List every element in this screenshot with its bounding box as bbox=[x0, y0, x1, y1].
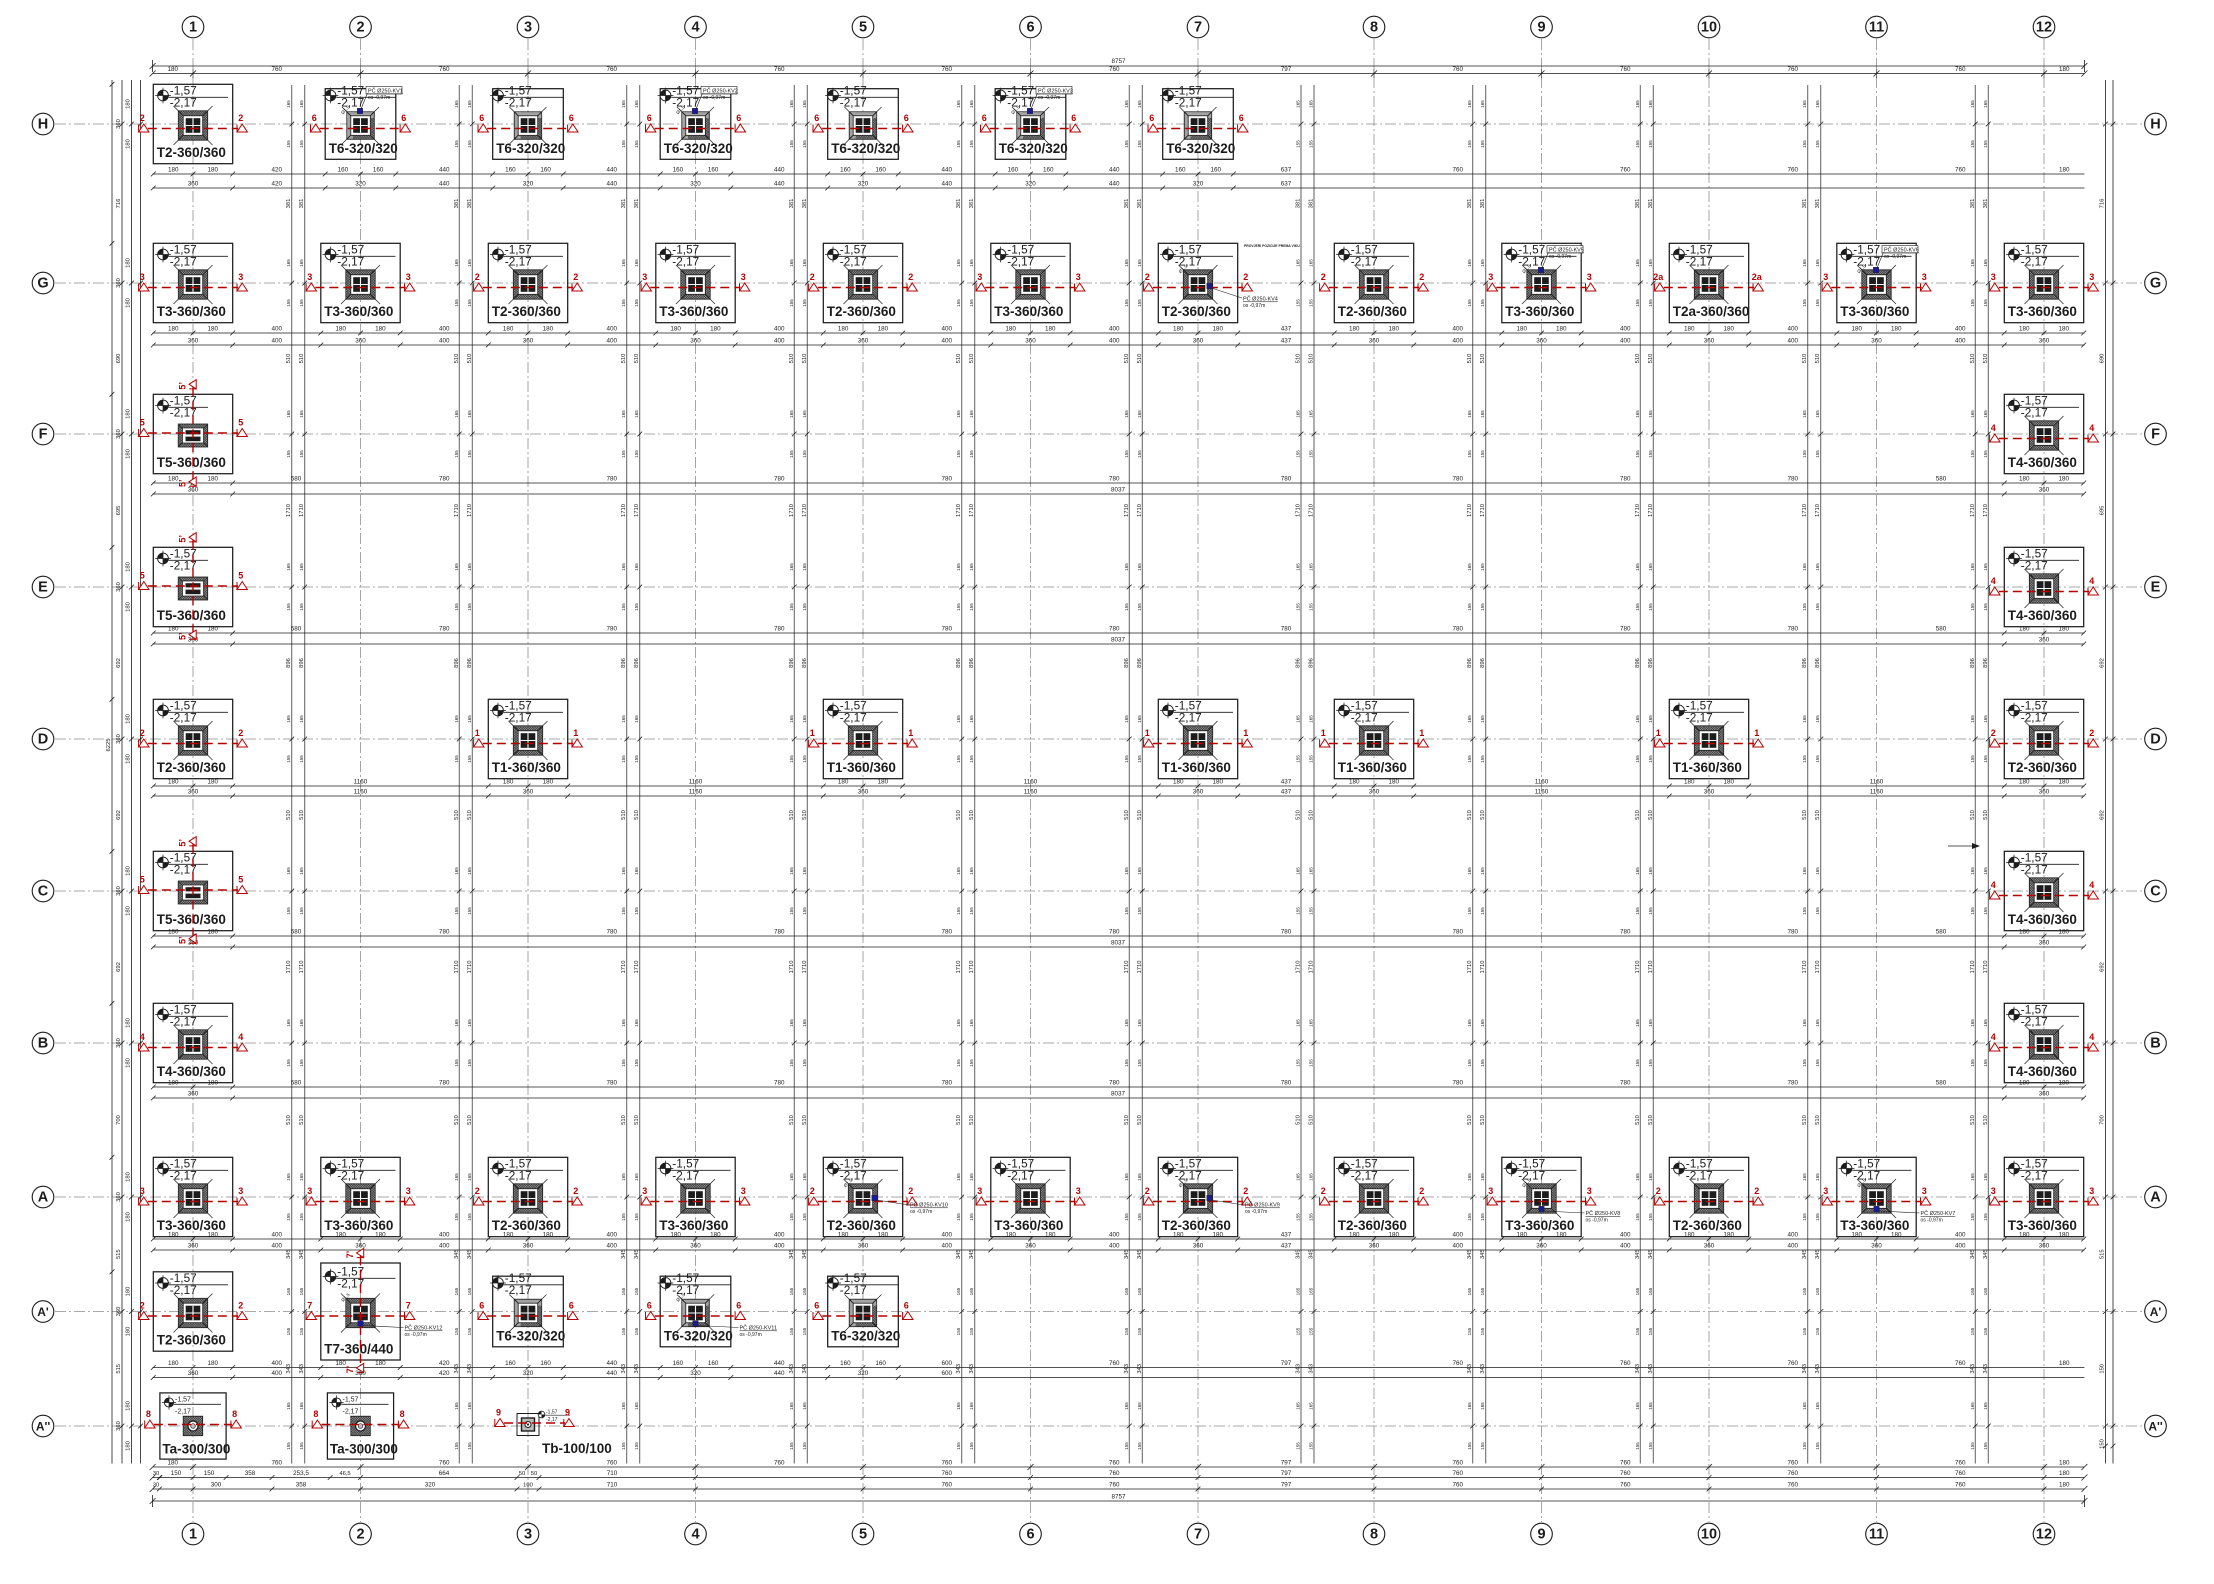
svg-text:165: 165 bbox=[1467, 259, 1472, 267]
svg-text:1160: 1160 bbox=[1870, 779, 1884, 786]
svg-text:180: 180 bbox=[168, 929, 179, 936]
svg-text:155: 155 bbox=[1137, 140, 1142, 148]
svg-text:760: 760 bbox=[1109, 1470, 1120, 1477]
svg-text:155: 155 bbox=[1296, 450, 1301, 458]
svg-text:165: 165 bbox=[1137, 715, 1142, 723]
svg-text:510: 510 bbox=[1124, 354, 1130, 364]
svg-text:343: 343 bbox=[789, 1364, 795, 1374]
svg-text:180: 180 bbox=[126, 139, 132, 149]
svg-text:155: 155 bbox=[1970, 603, 1975, 611]
svg-text:343: 343 bbox=[956, 1364, 962, 1374]
svg-text:797: 797 bbox=[1281, 66, 1292, 73]
svg-text:400: 400 bbox=[774, 338, 785, 345]
svg-text:400: 400 bbox=[774, 1243, 785, 1250]
svg-text:320: 320 bbox=[1025, 181, 1036, 188]
svg-text:437: 437 bbox=[1281, 338, 1292, 345]
svg-text:165: 165 bbox=[1309, 100, 1314, 108]
svg-text:os -0,97m: os -0,97m bbox=[405, 1332, 427, 1338]
svg-text:155: 155 bbox=[621, 907, 626, 915]
svg-text:510: 510 bbox=[1648, 354, 1654, 364]
svg-text:780: 780 bbox=[1788, 476, 1799, 483]
svg-text:2: 2 bbox=[573, 272, 578, 282]
svg-text:510: 510 bbox=[1802, 810, 1808, 820]
svg-text:320: 320 bbox=[1193, 181, 1204, 188]
svg-text:155: 155 bbox=[1309, 450, 1314, 458]
svg-text:510: 510 bbox=[1124, 1115, 1130, 1125]
svg-text:400: 400 bbox=[1109, 338, 1120, 345]
svg-text:1710: 1710 bbox=[286, 504, 292, 517]
svg-text:180: 180 bbox=[2059, 1360, 2070, 1367]
svg-text:180: 180 bbox=[375, 1360, 386, 1367]
svg-text:165: 165 bbox=[1635, 410, 1640, 418]
svg-text:165: 165 bbox=[1137, 867, 1142, 875]
svg-text:30: 30 bbox=[153, 1483, 159, 1489]
svg-text:1: 1 bbox=[189, 19, 197, 35]
svg-text:360: 360 bbox=[188, 1091, 199, 1098]
svg-text:155: 155 bbox=[454, 1442, 459, 1450]
svg-text:1160: 1160 bbox=[1024, 789, 1038, 796]
svg-text:381: 381 bbox=[1137, 199, 1143, 209]
svg-text:5: 5 bbox=[140, 875, 145, 885]
svg-text:165: 165 bbox=[1124, 1019, 1129, 1027]
svg-text:437: 437 bbox=[1281, 779, 1292, 786]
svg-text:165: 165 bbox=[634, 715, 639, 723]
svg-text:345: 345 bbox=[1467, 1249, 1473, 1259]
svg-text:1710: 1710 bbox=[1137, 961, 1143, 974]
svg-text:510: 510 bbox=[1467, 1115, 1473, 1125]
svg-text:180: 180 bbox=[838, 326, 849, 333]
svg-text:2a: 2a bbox=[1752, 272, 1763, 282]
svg-text:381: 381 bbox=[634, 199, 640, 209]
svg-text:155: 155 bbox=[1124, 299, 1129, 307]
svg-text:T3-360/360: T3-360/360 bbox=[157, 1218, 226, 1233]
svg-text:1: 1 bbox=[810, 728, 815, 738]
svg-text:PROVJERI POZICIJE PREMA VIKU: PROVJERI POZICIJE PREMA VIKU bbox=[1244, 244, 1300, 248]
svg-text:155: 155 bbox=[621, 1213, 626, 1221]
svg-text:155: 155 bbox=[467, 140, 472, 148]
svg-text:165: 165 bbox=[1983, 1173, 1988, 1181]
svg-text:165: 165 bbox=[1124, 100, 1129, 108]
svg-text:510: 510 bbox=[286, 354, 292, 364]
svg-text:360: 360 bbox=[2039, 1243, 2050, 1250]
svg-text:1710: 1710 bbox=[1970, 961, 1976, 974]
svg-text:1710: 1710 bbox=[789, 504, 795, 517]
svg-text:165: 165 bbox=[467, 867, 472, 875]
svg-text:692: 692 bbox=[116, 658, 122, 668]
svg-text:760: 760 bbox=[1453, 66, 1464, 73]
svg-text:760: 760 bbox=[942, 66, 953, 73]
svg-text:600: 600 bbox=[942, 1370, 953, 1377]
svg-text:360: 360 bbox=[1193, 338, 1204, 345]
svg-text:165: 165 bbox=[634, 259, 639, 267]
svg-text:1710: 1710 bbox=[634, 504, 640, 517]
svg-text:2: 2 bbox=[356, 19, 364, 35]
svg-text:510: 510 bbox=[299, 354, 305, 364]
svg-text:155: 155 bbox=[1635, 1213, 1640, 1221]
svg-text:165: 165 bbox=[1635, 259, 1640, 267]
svg-text:165: 165 bbox=[621, 563, 626, 571]
svg-text:165: 165 bbox=[1309, 563, 1314, 571]
svg-text:155: 155 bbox=[802, 1327, 807, 1335]
svg-text:155: 155 bbox=[1296, 907, 1301, 915]
svg-text:165: 165 bbox=[1124, 715, 1129, 723]
svg-text:360: 360 bbox=[116, 734, 122, 744]
svg-text:180: 180 bbox=[208, 779, 219, 786]
svg-text:165: 165 bbox=[1648, 410, 1653, 418]
svg-text:343: 343 bbox=[299, 1364, 305, 1374]
svg-text:165: 165 bbox=[621, 867, 626, 875]
svg-text:155: 155 bbox=[1480, 1442, 1485, 1450]
svg-text:50: 50 bbox=[531, 1471, 537, 1477]
svg-text:345: 345 bbox=[1296, 1249, 1302, 1259]
svg-text:8: 8 bbox=[1370, 19, 1378, 35]
svg-text:155: 155 bbox=[1635, 1327, 1640, 1335]
svg-text:160: 160 bbox=[1008, 167, 1019, 174]
svg-text:780: 780 bbox=[607, 1080, 618, 1087]
svg-text:381: 381 bbox=[1309, 199, 1315, 209]
svg-text:3: 3 bbox=[1922, 1186, 1927, 1196]
svg-text:180: 180 bbox=[168, 167, 179, 174]
svg-text:155: 155 bbox=[1124, 1442, 1129, 1450]
svg-text:PČ Ø250-KV2: PČ Ø250-KV2 bbox=[703, 88, 738, 95]
svg-text:440: 440 bbox=[439, 167, 450, 174]
svg-text:T6-320/320: T6-320/320 bbox=[831, 1328, 900, 1343]
svg-text:7’: 7’ bbox=[345, 1251, 355, 1259]
svg-text:-2,17: -2,17 bbox=[170, 1283, 197, 1297]
svg-text:165: 165 bbox=[956, 563, 961, 571]
svg-text:360: 360 bbox=[858, 338, 869, 345]
svg-text:1: 1 bbox=[1754, 728, 1759, 738]
svg-text:155: 155 bbox=[1137, 299, 1142, 307]
svg-text:-2,17: -2,17 bbox=[337, 95, 364, 109]
svg-text:155: 155 bbox=[634, 140, 639, 148]
svg-text:343: 343 bbox=[1635, 1364, 1641, 1374]
svg-text:165: 165 bbox=[1635, 1402, 1640, 1410]
svg-text:165: 165 bbox=[299, 867, 304, 875]
svg-text:760: 760 bbox=[1109, 66, 1120, 73]
svg-text:8: 8 bbox=[146, 1409, 151, 1419]
svg-text:345: 345 bbox=[1124, 1249, 1130, 1259]
svg-text:155: 155 bbox=[1296, 1059, 1301, 1067]
svg-text:PČ Ø250-KV6: PČ Ø250-KV6 bbox=[1884, 247, 1919, 254]
svg-text:510: 510 bbox=[969, 354, 975, 364]
svg-text:180: 180 bbox=[2059, 66, 2070, 73]
svg-text:180: 180 bbox=[208, 929, 219, 936]
svg-text:896: 896 bbox=[956, 658, 962, 668]
svg-text:510: 510 bbox=[1648, 810, 1654, 820]
svg-text:165: 165 bbox=[467, 1019, 472, 1027]
svg-text:360: 360 bbox=[1704, 789, 1715, 796]
svg-text:155: 155 bbox=[454, 1327, 459, 1335]
svg-text:155: 155 bbox=[634, 907, 639, 915]
svg-text:896: 896 bbox=[1802, 658, 1808, 668]
svg-text:T6-320/320: T6-320/320 bbox=[1166, 141, 1235, 156]
svg-text:7: 7 bbox=[307, 1301, 312, 1311]
svg-text:440: 440 bbox=[774, 167, 785, 174]
svg-text:780: 780 bbox=[1109, 476, 1120, 483]
svg-text:165: 165 bbox=[1648, 259, 1653, 267]
svg-text:155: 155 bbox=[299, 299, 304, 307]
svg-text:165: 165 bbox=[634, 1402, 639, 1410]
svg-text:180: 180 bbox=[126, 906, 132, 916]
svg-text:320: 320 bbox=[355, 181, 366, 188]
svg-text:os -0,97m: os -0,97m bbox=[740, 1332, 762, 1338]
svg-text:-2,17: -2,17 bbox=[1686, 1168, 1713, 1182]
svg-text:165: 165 bbox=[1983, 410, 1988, 418]
svg-text:165: 165 bbox=[969, 410, 974, 418]
svg-text:155: 155 bbox=[1480, 603, 1485, 611]
svg-text:155: 155 bbox=[1309, 603, 1314, 611]
svg-text:8: 8 bbox=[1370, 1526, 1378, 1542]
svg-text:165: 165 bbox=[1815, 410, 1820, 418]
svg-text:os -0,97m: os -0,97m bbox=[1586, 1218, 1608, 1224]
svg-text:G: G bbox=[37, 275, 48, 291]
svg-text:2: 2 bbox=[908, 1186, 913, 1196]
svg-text:155: 155 bbox=[1815, 1442, 1820, 1450]
svg-text:155: 155 bbox=[1124, 1327, 1129, 1335]
svg-text:150: 150 bbox=[171, 1470, 182, 1477]
svg-text:165: 165 bbox=[1137, 259, 1142, 267]
svg-text:155: 155 bbox=[454, 907, 459, 915]
svg-text:155: 155 bbox=[634, 450, 639, 458]
svg-text:180: 180 bbox=[2059, 167, 2070, 174]
svg-text:165: 165 bbox=[454, 715, 459, 723]
svg-text:os -0,97m: os -0,97m bbox=[703, 95, 725, 101]
svg-text:343: 343 bbox=[634, 1364, 640, 1374]
svg-text:1710: 1710 bbox=[634, 961, 640, 974]
svg-text:165: 165 bbox=[286, 563, 291, 571]
svg-text:os -0,97m: os -0,97m bbox=[368, 95, 390, 101]
svg-text:510: 510 bbox=[1802, 354, 1808, 364]
svg-text:360: 360 bbox=[523, 1243, 534, 1250]
svg-text:3: 3 bbox=[741, 1186, 746, 1196]
svg-text:165: 165 bbox=[969, 259, 974, 267]
svg-text:6: 6 bbox=[1239, 113, 1244, 123]
svg-text:2: 2 bbox=[1145, 272, 1150, 282]
svg-text:155: 155 bbox=[1983, 755, 1988, 763]
svg-text:1: 1 bbox=[908, 728, 913, 738]
svg-text:155: 155 bbox=[1970, 140, 1975, 148]
svg-text:T3-360/360: T3-360/360 bbox=[324, 1218, 393, 1233]
svg-text:155: 155 bbox=[467, 907, 472, 915]
svg-text:155: 155 bbox=[1635, 1442, 1640, 1450]
svg-text:1: 1 bbox=[1656, 728, 1661, 738]
svg-text:510: 510 bbox=[969, 1115, 975, 1125]
svg-text:155: 155 bbox=[969, 450, 974, 458]
svg-text:165: 165 bbox=[621, 259, 626, 267]
svg-text:Tb-100/100: Tb-100/100 bbox=[542, 1441, 612, 1456]
svg-text:343: 343 bbox=[1480, 1364, 1486, 1374]
svg-text:155: 155 bbox=[1983, 140, 1988, 148]
svg-text:6: 6 bbox=[401, 113, 406, 123]
svg-text:2: 2 bbox=[1321, 1186, 1326, 1196]
svg-text:437: 437 bbox=[1281, 1243, 1292, 1250]
svg-text:437: 437 bbox=[1281, 1232, 1292, 1239]
svg-text:760: 760 bbox=[272, 66, 283, 73]
svg-text:165: 165 bbox=[789, 1173, 794, 1181]
svg-text:155: 155 bbox=[789, 140, 794, 148]
svg-text:T2-360/360: T2-360/360 bbox=[157, 145, 226, 160]
svg-text:3: 3 bbox=[238, 1186, 243, 1196]
svg-text:165: 165 bbox=[1802, 867, 1807, 875]
svg-text:180: 180 bbox=[670, 326, 681, 333]
svg-text:H: H bbox=[38, 116, 48, 132]
svg-text:580: 580 bbox=[291, 476, 302, 483]
svg-text:A: A bbox=[2150, 1189, 2161, 1205]
svg-text:510: 510 bbox=[789, 354, 795, 364]
svg-text:760: 760 bbox=[1788, 1482, 1799, 1489]
svg-text:343: 343 bbox=[1983, 1364, 1989, 1374]
svg-text:2: 2 bbox=[1419, 1186, 1424, 1196]
svg-text:3: 3 bbox=[1076, 272, 1081, 282]
svg-text:B: B bbox=[38, 1035, 48, 1051]
svg-text:3: 3 bbox=[1488, 272, 1493, 282]
svg-text:180: 180 bbox=[1851, 326, 1862, 333]
svg-text:440: 440 bbox=[607, 1360, 618, 1367]
svg-text:165: 165 bbox=[1802, 1019, 1807, 1027]
svg-text:165: 165 bbox=[1983, 1287, 1988, 1295]
svg-text:400: 400 bbox=[1788, 1232, 1799, 1239]
svg-text:155: 155 bbox=[1480, 299, 1485, 307]
svg-text:165: 165 bbox=[1296, 867, 1301, 875]
svg-text:180: 180 bbox=[168, 66, 179, 73]
svg-text:1710: 1710 bbox=[467, 504, 473, 517]
svg-text:165: 165 bbox=[454, 867, 459, 875]
svg-text:381: 381 bbox=[1296, 199, 1302, 209]
svg-text:1710: 1710 bbox=[1648, 961, 1654, 974]
svg-text:165: 165 bbox=[1309, 1173, 1314, 1181]
svg-text:1710: 1710 bbox=[1124, 504, 1130, 517]
svg-text:10: 10 bbox=[1701, 19, 1717, 35]
svg-text:360: 360 bbox=[116, 278, 122, 288]
svg-text:343: 343 bbox=[1309, 1364, 1315, 1374]
svg-text:4: 4 bbox=[1991, 1032, 1996, 1042]
svg-text:896: 896 bbox=[1124, 658, 1130, 668]
svg-text:343: 343 bbox=[286, 1364, 292, 1374]
svg-text:-2,17: -2,17 bbox=[170, 254, 197, 268]
svg-text:-2,17: -2,17 bbox=[170, 95, 197, 109]
svg-text:165: 165 bbox=[969, 1402, 974, 1410]
svg-text:165: 165 bbox=[969, 100, 974, 108]
svg-text:165: 165 bbox=[621, 1287, 626, 1295]
svg-text:1710: 1710 bbox=[1309, 961, 1315, 974]
svg-text:155: 155 bbox=[956, 1059, 961, 1067]
svg-text:360: 360 bbox=[1536, 338, 1547, 345]
svg-text:-2,17: -2,17 bbox=[1853, 1168, 1880, 1182]
svg-text:780: 780 bbox=[1453, 1080, 1464, 1087]
svg-text:8757: 8757 bbox=[1111, 58, 1126, 65]
svg-text:510: 510 bbox=[1137, 354, 1143, 364]
svg-text:180: 180 bbox=[208, 326, 219, 333]
svg-text:1710: 1710 bbox=[621, 504, 627, 517]
svg-text:896: 896 bbox=[969, 658, 975, 668]
svg-text:360: 360 bbox=[2039, 637, 2050, 644]
svg-text:165: 165 bbox=[1983, 715, 1988, 723]
svg-text:6: 6 bbox=[1149, 113, 1154, 123]
svg-text:160: 160 bbox=[708, 167, 719, 174]
svg-text:180: 180 bbox=[2059, 1470, 2070, 1477]
svg-text:165: 165 bbox=[454, 1019, 459, 1027]
svg-text:155: 155 bbox=[1467, 1327, 1472, 1335]
svg-text:165: 165 bbox=[1309, 1019, 1314, 1027]
svg-text:T3-360/360: T3-360/360 bbox=[994, 304, 1063, 319]
svg-text:510: 510 bbox=[454, 810, 460, 820]
svg-text:165: 165 bbox=[802, 1173, 807, 1181]
svg-text:9: 9 bbox=[565, 1408, 570, 1418]
svg-text:155: 155 bbox=[802, 140, 807, 148]
svg-text:510: 510 bbox=[621, 1115, 627, 1125]
svg-text:165: 165 bbox=[789, 715, 794, 723]
svg-text:155: 155 bbox=[1137, 450, 1142, 458]
svg-text:510: 510 bbox=[802, 1115, 808, 1125]
svg-text:165: 165 bbox=[1137, 1287, 1142, 1295]
svg-text:381: 381 bbox=[956, 199, 962, 209]
svg-text:-2,17: -2,17 bbox=[1351, 710, 1378, 724]
svg-text:155: 155 bbox=[1480, 755, 1485, 763]
svg-text:1160: 1160 bbox=[1024, 779, 1038, 786]
svg-text:165: 165 bbox=[1648, 1287, 1653, 1295]
svg-text:155: 155 bbox=[956, 450, 961, 458]
svg-text:165: 165 bbox=[1137, 1402, 1142, 1410]
svg-text:30: 30 bbox=[153, 1471, 159, 1477]
svg-text:400: 400 bbox=[942, 1232, 953, 1239]
svg-text:165: 165 bbox=[634, 1287, 639, 1295]
svg-text:580: 580 bbox=[1936, 1080, 1947, 1087]
svg-text:358: 358 bbox=[296, 1482, 307, 1489]
svg-text:2: 2 bbox=[475, 272, 480, 282]
svg-text:400: 400 bbox=[607, 338, 618, 345]
svg-text:165: 165 bbox=[1124, 1287, 1129, 1295]
svg-text:155: 155 bbox=[789, 450, 794, 458]
svg-text:155: 155 bbox=[789, 299, 794, 307]
svg-text:6: 6 bbox=[904, 113, 909, 123]
svg-text:180: 180 bbox=[503, 326, 514, 333]
svg-text:3: 3 bbox=[1922, 272, 1927, 282]
svg-text:780: 780 bbox=[1620, 1080, 1631, 1087]
svg-text:6: 6 bbox=[1026, 1526, 1034, 1542]
svg-text:165: 165 bbox=[467, 563, 472, 571]
svg-text:180: 180 bbox=[126, 99, 132, 109]
svg-text:165: 165 bbox=[802, 867, 807, 875]
svg-text:400: 400 bbox=[1788, 326, 1799, 333]
svg-text:6: 6 bbox=[736, 113, 741, 123]
svg-text:343: 343 bbox=[1648, 1364, 1654, 1374]
svg-text:A': A' bbox=[37, 1305, 49, 1319]
svg-text:797: 797 bbox=[1281, 1470, 1292, 1477]
svg-text:360: 360 bbox=[523, 789, 534, 796]
svg-text:360: 360 bbox=[355, 338, 366, 345]
svg-text:165: 165 bbox=[1480, 1173, 1485, 1181]
svg-text:180: 180 bbox=[1516, 326, 1527, 333]
svg-text:360: 360 bbox=[1025, 338, 1036, 345]
svg-text:155: 155 bbox=[1635, 603, 1640, 611]
svg-text:4: 4 bbox=[691, 19, 699, 35]
svg-text:155: 155 bbox=[1648, 140, 1653, 148]
svg-text:780: 780 bbox=[942, 626, 953, 633]
svg-text:155: 155 bbox=[969, 755, 974, 763]
svg-text:381: 381 bbox=[1124, 199, 1130, 209]
svg-text:-2,17: -2,17 bbox=[1007, 1168, 1034, 1182]
svg-text:780: 780 bbox=[1281, 929, 1292, 936]
svg-text:510: 510 bbox=[789, 810, 795, 820]
svg-text:T5-360/360: T5-360/360 bbox=[157, 455, 226, 470]
svg-text:343: 343 bbox=[467, 1364, 473, 1374]
svg-text:T3-360/360: T3-360/360 bbox=[2008, 1218, 2077, 1233]
svg-text:180: 180 bbox=[208, 476, 219, 483]
svg-text:155: 155 bbox=[299, 1213, 304, 1221]
svg-text:155: 155 bbox=[1802, 450, 1807, 458]
svg-text:155: 155 bbox=[802, 299, 807, 307]
